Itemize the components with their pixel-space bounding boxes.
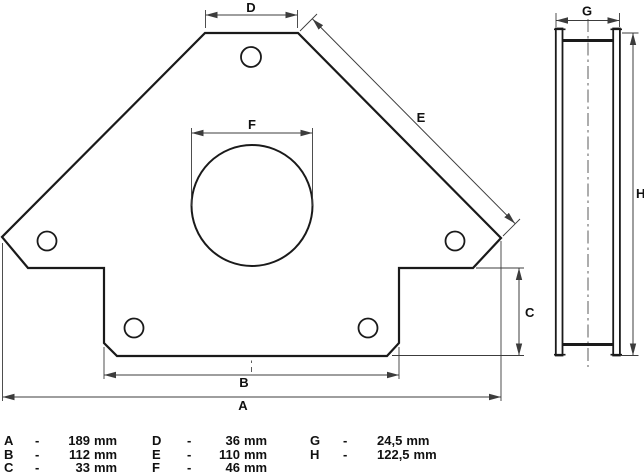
dim-label-H: H — [636, 186, 644, 201]
legend-column-3: G - 24,5mm H - 122,5mm — [310, 434, 437, 461]
legend-separator: - — [35, 461, 68, 475]
legend-separator: - — [187, 461, 213, 475]
legend-separator: - — [187, 434, 213, 448]
legend-row-e: E - 110 mm — [152, 448, 267, 462]
dim-label-C: C — [525, 305, 535, 320]
bottom-right-hole — [359, 319, 378, 338]
drawing-canvas: D F E C — [0, 0, 644, 430]
legend-value: 46 — [213, 461, 240, 475]
legend-value: 189 — [68, 434, 90, 448]
legend-unit: mm — [90, 434, 117, 448]
dim-label-A: A — [238, 398, 248, 413]
legend-column-2: D - 36 mm E - 110 mm F - 46 mm — [152, 434, 267, 475]
legend-row-f: F - 46 mm — [152, 461, 267, 475]
legend-value-with-unit: 24,5mm — [377, 434, 437, 448]
legend-unit: mm — [240, 434, 267, 448]
legend-value: 110 — [213, 448, 240, 462]
legend-row-c: C - 33 mm — [4, 461, 117, 475]
legend-separator: - — [35, 448, 68, 462]
legend-key: D — [152, 434, 187, 448]
legend-key: E — [152, 448, 187, 462]
dimension-D: D — [206, 0, 298, 28]
right-hole — [446, 232, 465, 251]
dimension-H: H — [621, 33, 644, 356]
legend-row-g: G - 24,5mm — [310, 434, 437, 448]
legend-unit: mm — [240, 448, 267, 462]
legend-row-d: D - 36 mm — [152, 434, 267, 448]
legend-separator: - — [343, 448, 377, 462]
bottom-left-hole — [125, 319, 144, 338]
legend-row-b: B - 112 mm — [4, 448, 117, 462]
legend-separator: - — [35, 434, 68, 448]
dim-label-B: B — [239, 375, 248, 390]
side-view-left-plate — [556, 29, 563, 356]
legend-key: A — [4, 434, 35, 448]
dimension-C: C — [392, 268, 535, 356]
legend-key: G — [310, 434, 343, 448]
side-view-right-plate — [613, 29, 620, 356]
legend-unit: mm — [90, 461, 117, 475]
technical-drawing-page: D F E C — [0, 0, 644, 475]
front-view: D F E C — [2, 0, 535, 413]
legend-unit: mm — [90, 448, 117, 462]
dim-label-G: G — [582, 4, 592, 19]
dim-label-E: E — [417, 110, 426, 125]
legend-row-h: H - 122,5mm — [310, 448, 437, 462]
legend-key: C — [4, 461, 35, 475]
legend-value: 36 — [213, 434, 240, 448]
legend-value: 33 — [68, 461, 90, 475]
legend-value: 112 — [68, 448, 90, 462]
legend-unit: mm — [240, 461, 267, 475]
legend-separator: - — [187, 448, 213, 462]
legend-row-a: A - 189 mm — [4, 434, 117, 448]
left-hole — [38, 232, 57, 251]
dim-label-F: F — [248, 117, 256, 132]
side-view: G H — [554, 4, 644, 368]
center-hole — [192, 145, 313, 266]
legend-key: H — [310, 448, 343, 462]
legend-separator: - — [343, 434, 377, 448]
legend-value-with-unit: 122,5mm — [377, 448, 437, 462]
dim-label-D: D — [246, 0, 255, 15]
legend-key: F — [152, 461, 187, 475]
legend-column-1: A - 189 mm B - 112 mm C - 33 mm — [4, 434, 117, 475]
legend-key: B — [4, 448, 35, 462]
top-hole — [241, 47, 261, 67]
